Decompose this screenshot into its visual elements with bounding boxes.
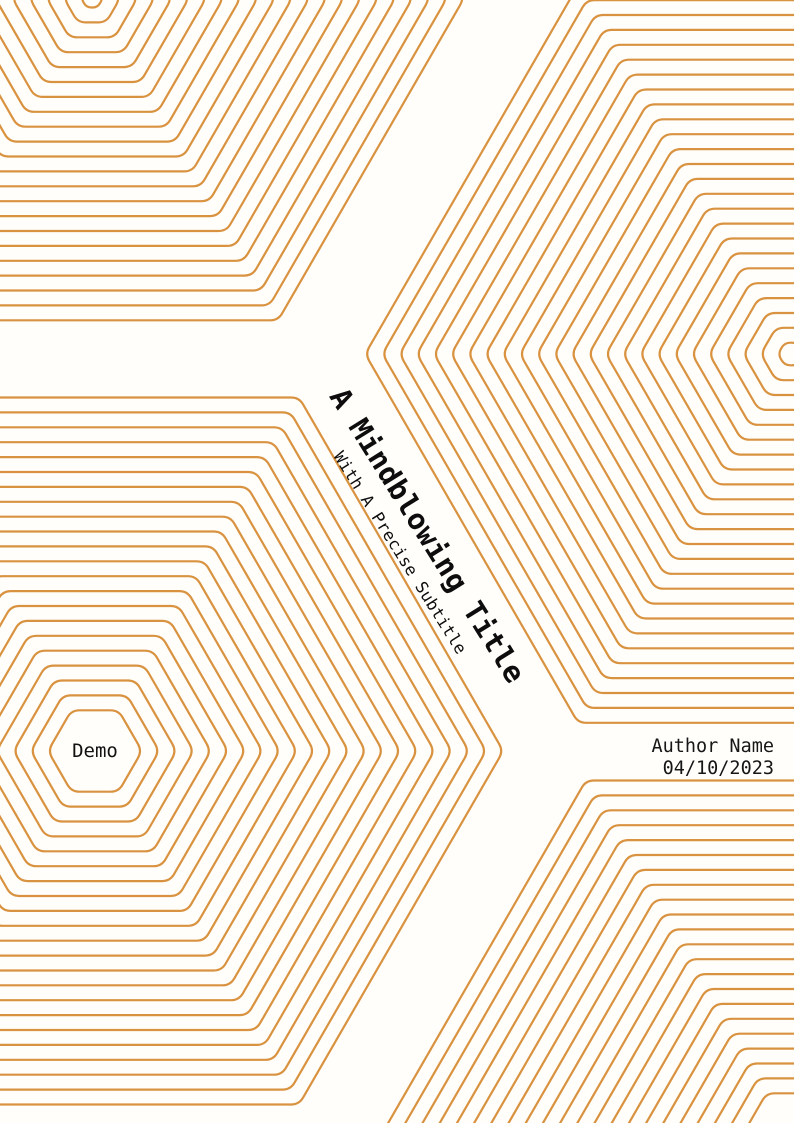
hexagon-ring bbox=[711, 283, 794, 425]
hexagon-ring bbox=[0, 561, 312, 940]
hexagon-ring bbox=[0, 621, 243, 881]
hexagon-ring bbox=[0, 0, 256, 142]
hex-pattern-bottom-right bbox=[384, 781, 794, 1123]
hexagon-ring bbox=[539, 134, 794, 574]
hex-pattern-top-left bbox=[0, 0, 462, 320]
hexagon-ring bbox=[0, 0, 445, 305]
hexagon-ring bbox=[642, 224, 794, 485]
hexagon-ring bbox=[488, 90, 794, 619]
hexagon-ring bbox=[0, 0, 290, 171]
hexagon-ring bbox=[49, 0, 136, 37]
hexagon-ring bbox=[779, 343, 794, 366]
hexagon-ring bbox=[746, 313, 794, 395]
hexagon-ring bbox=[0, 0, 239, 127]
hexagon-ring bbox=[66, 0, 118, 22]
hexagon-ring bbox=[660, 239, 794, 470]
hexagon-ring bbox=[0, 0, 462, 320]
author-name: Author Name bbox=[651, 736, 774, 758]
demo-label: Demo bbox=[72, 740, 118, 762]
hexagon-ring bbox=[728, 298, 794, 410]
hexagon-ring bbox=[487, 870, 794, 1123]
hexagon-ring bbox=[693, 1049, 794, 1123]
hexagon-ring bbox=[556, 149, 794, 559]
author-block: Author Name 04/10/2023 bbox=[651, 736, 774, 779]
hexagon-ring bbox=[418, 810, 794, 1123]
document-page: A Mindblowing Title With A Precise Subti… bbox=[0, 0, 794, 1123]
document-date: 04/10/2023 bbox=[651, 758, 774, 780]
hexagon-ring bbox=[0, 487, 398, 1015]
hexagon-ring bbox=[0, 576, 295, 926]
hexagon-ring bbox=[82, 0, 102, 8]
hexagon-ring bbox=[625, 209, 794, 500]
hexagon-ring bbox=[745, 1093, 794, 1123]
hexagon-ring bbox=[0, 0, 376, 246]
hexagon-ring bbox=[0, 472, 415, 1030]
hexagon-ring bbox=[0, 0, 187, 82]
hexagon-ring bbox=[0, 591, 278, 911]
hexagon-ring bbox=[0, 0, 221, 112]
hexagon-ring bbox=[0, 517, 364, 986]
